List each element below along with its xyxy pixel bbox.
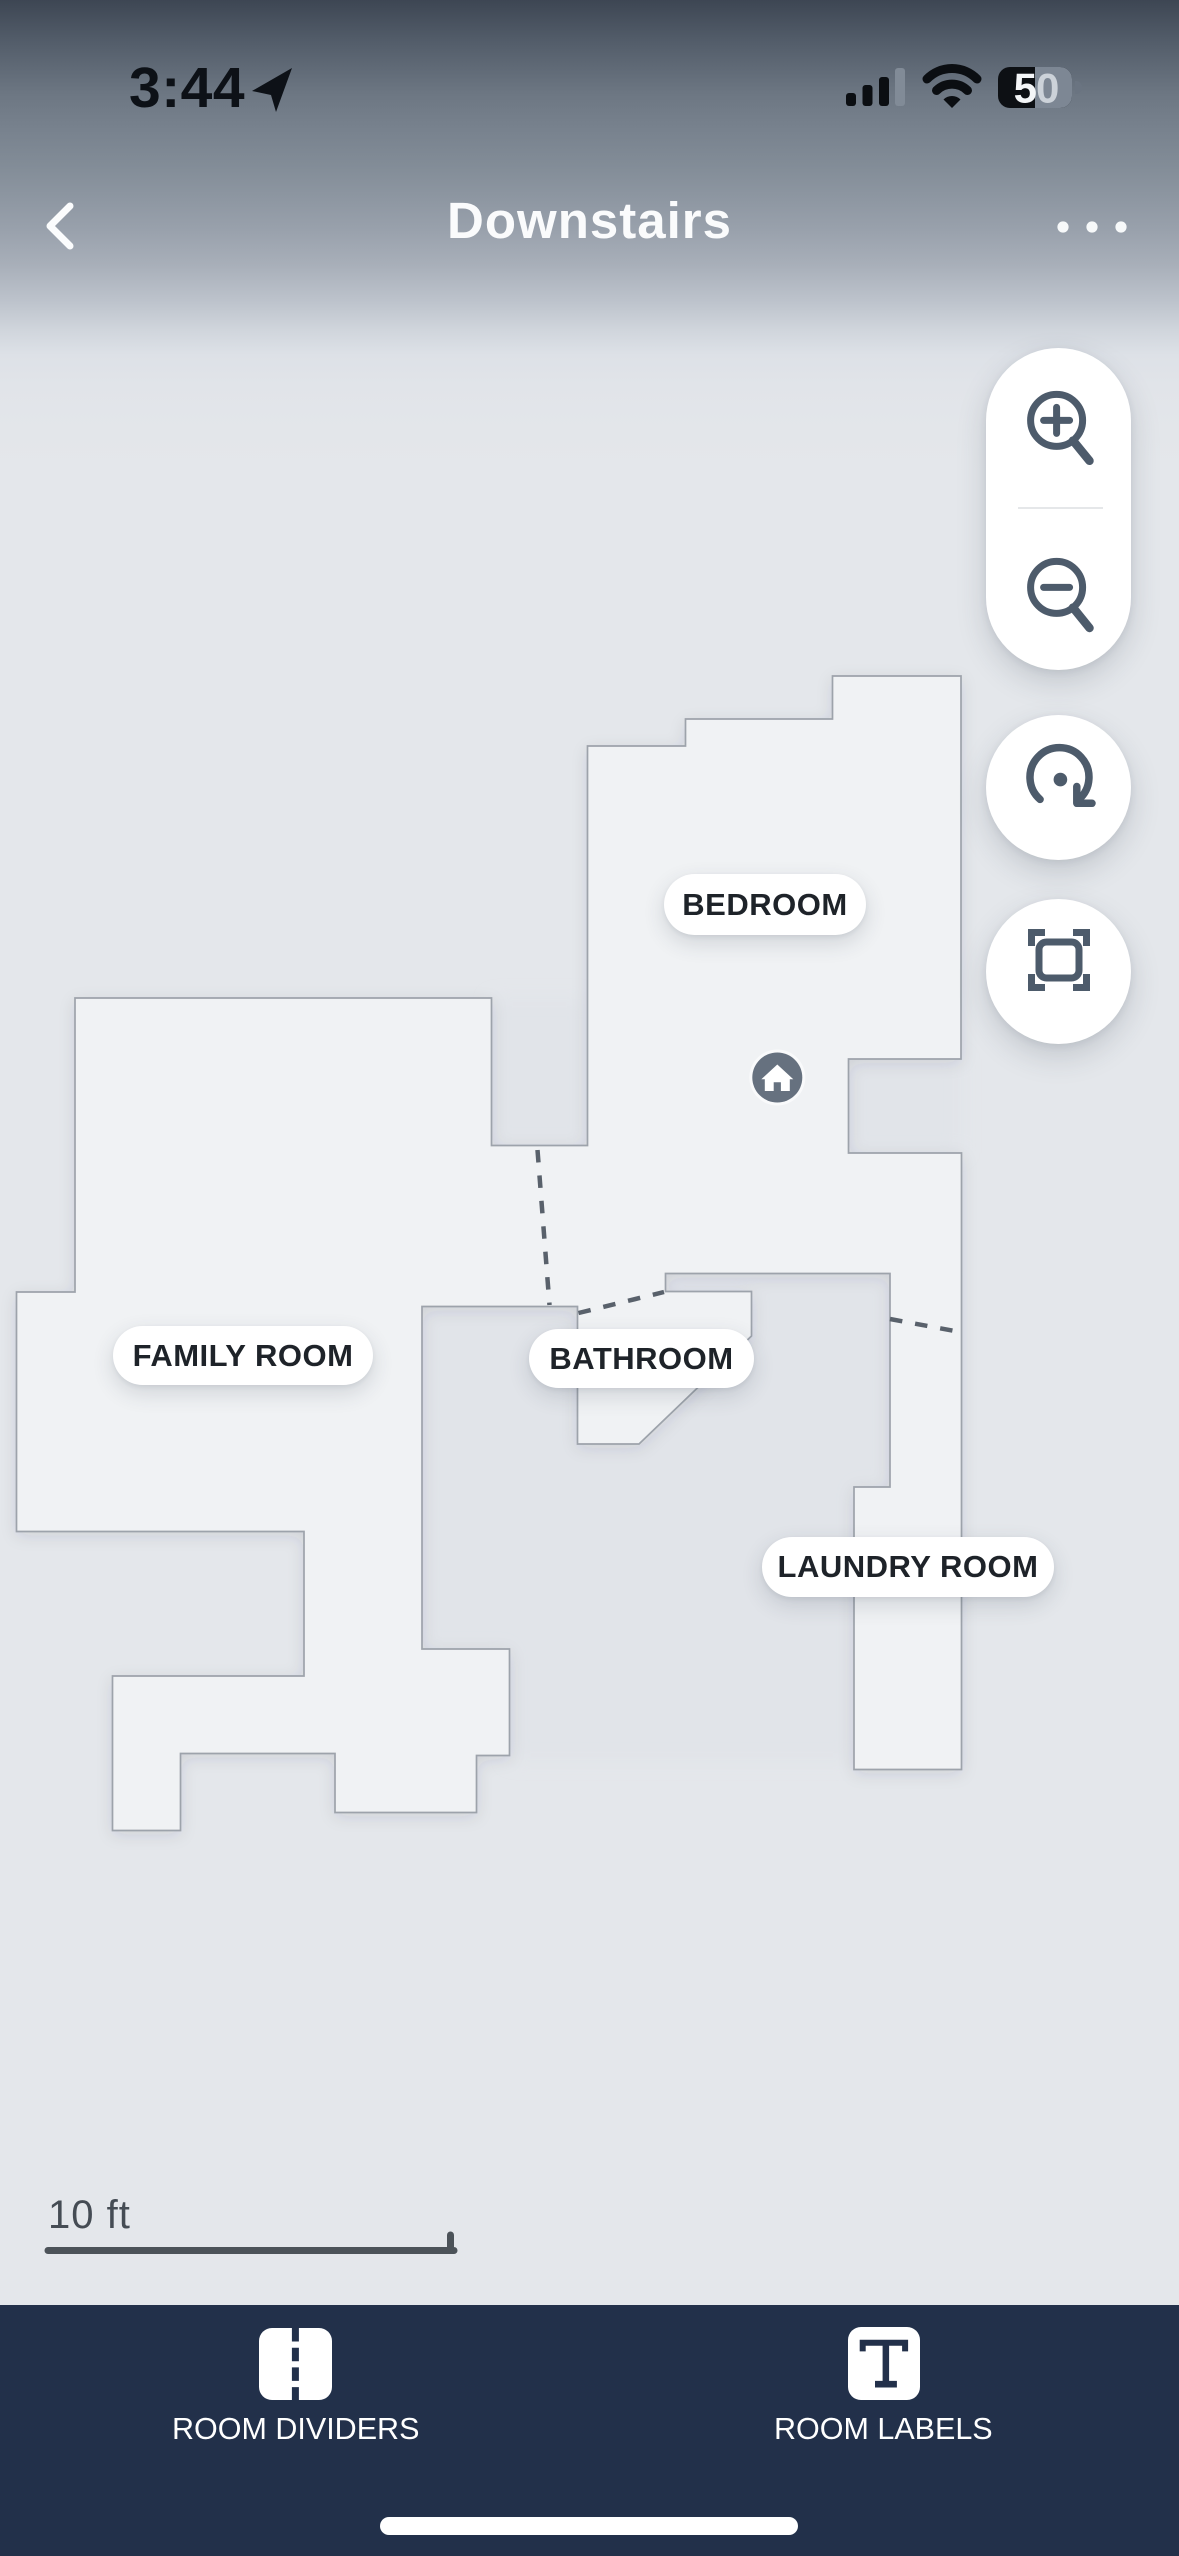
svg-text:10 ft: 10 ft xyxy=(48,2193,131,2237)
svg-text:50: 50 xyxy=(1014,67,1059,108)
